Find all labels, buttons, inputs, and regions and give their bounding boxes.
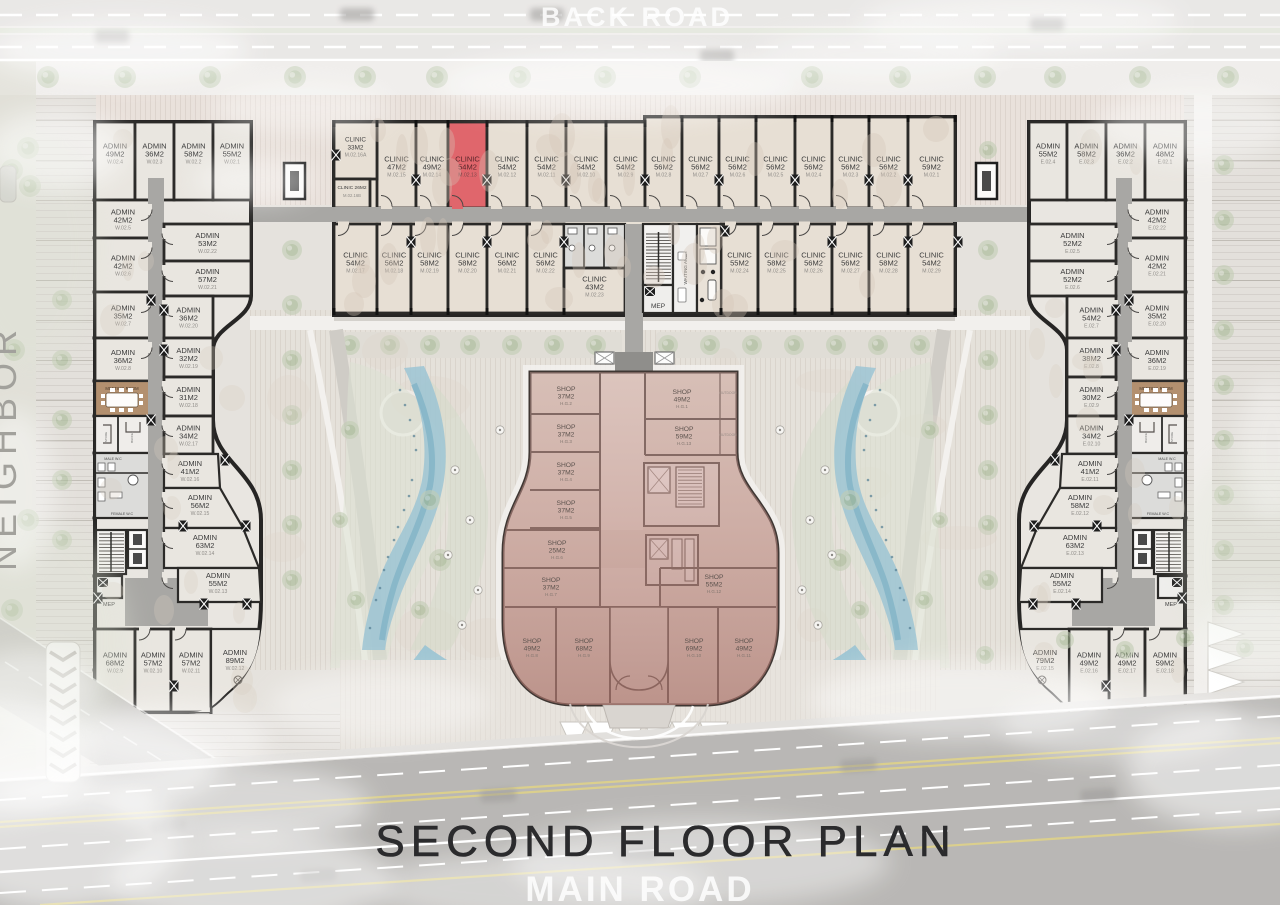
- svg-text:H.G.2: H.G.2: [560, 401, 572, 406]
- svg-text:W.02.15: W.02.15: [191, 511, 210, 517]
- svg-text:53M2: 53M2: [198, 239, 217, 248]
- svg-text:H.G.8: H.G.8: [526, 653, 538, 658]
- svg-text:E.02.20: E.02.20: [1148, 322, 1166, 328]
- svg-text:E.02.16: E.02.16: [1080, 669, 1098, 675]
- svg-text:54M2: 54M2: [922, 259, 941, 268]
- svg-text:W.02.16: W.02.16: [181, 477, 200, 483]
- svg-text:58M2: 58M2: [458, 259, 477, 268]
- svg-text:MALE W.C: MALE W.C: [1158, 457, 1176, 461]
- svg-text:SHOP: SHOP: [685, 638, 704, 645]
- svg-text:63M2: 63M2: [196, 541, 215, 550]
- svg-text:MAIN ROAD: MAIN ROAD: [525, 870, 754, 905]
- svg-text:SHOP: SHOP: [542, 577, 561, 584]
- svg-text:STORE: STORE: [104, 432, 108, 442]
- svg-text:37M2: 37M2: [543, 585, 560, 592]
- svg-text:M.02.16A: M.02.16A: [345, 153, 367, 159]
- svg-text:SHOP: SHOP: [548, 540, 567, 547]
- svg-text:52M2: 52M2: [1063, 239, 1082, 248]
- svg-text:58M2: 58M2: [420, 259, 439, 268]
- svg-text:49M2: 49M2: [1080, 659, 1099, 668]
- svg-text:31M2: 31M2: [179, 393, 198, 402]
- svg-text:49M2: 49M2: [736, 646, 753, 653]
- svg-text:69M2: 69M2: [686, 646, 703, 653]
- svg-text:BUFFET: BUFFET: [130, 431, 134, 443]
- svg-text:MALE W.C: MALE W.C: [104, 457, 122, 461]
- svg-text:E.02.4: E.02.4: [1041, 160, 1056, 166]
- svg-text:OUTDOOR: OUTDOOR: [719, 433, 737, 437]
- svg-text:NEIGHBOR: NEIGHBOR: [0, 323, 24, 571]
- svg-text:H.G.13: H.G.13: [677, 441, 692, 446]
- svg-text:E.02.22: E.02.22: [1148, 226, 1166, 232]
- svg-text:SECOND FLOOR PLAN: SECOND FLOOR PLAN: [375, 817, 956, 866]
- svg-text:36M2: 36M2: [145, 150, 164, 159]
- svg-text:37M2: 37M2: [558, 470, 575, 477]
- svg-text:SHOP: SHOP: [705, 574, 724, 581]
- svg-text:57M2: 57M2: [198, 275, 217, 284]
- svg-text:89M2: 89M2: [226, 656, 245, 665]
- svg-text:49M2: 49M2: [1118, 659, 1137, 668]
- svg-text:59M2: 59M2: [922, 163, 941, 172]
- svg-text:H.G.5: H.G.5: [560, 515, 572, 520]
- svg-text:54M2: 54M2: [458, 163, 477, 172]
- svg-text:M.02.21: M.02.21: [498, 269, 517, 275]
- svg-text:SHOP: SHOP: [557, 462, 576, 469]
- svg-text:58M2: 58M2: [879, 259, 898, 268]
- svg-text:E.02.19: E.02.19: [1148, 366, 1166, 372]
- svg-text:BACK ROAD: BACK ROAD: [541, 2, 733, 32]
- svg-text:56M2: 56M2: [841, 163, 860, 172]
- svg-text:52M2: 52M2: [1063, 275, 1082, 284]
- svg-text:M.02.3: M.02.3: [843, 173, 859, 179]
- svg-text:W.02.8: W.02.8: [115, 366, 131, 372]
- svg-text:57M2: 57M2: [144, 659, 163, 668]
- svg-text:FEMALE W.C: FEMALE W.C: [1147, 512, 1170, 516]
- svg-text:M.02.27: M.02.27: [841, 269, 860, 275]
- svg-text:25M2: 25M2: [549, 548, 566, 555]
- svg-text:SHOP: SHOP: [523, 638, 542, 645]
- svg-text:37M2: 37M2: [558, 508, 575, 515]
- svg-text:59M2: 59M2: [676, 434, 693, 441]
- svg-text:W.02.22: W.02.22: [198, 249, 217, 255]
- svg-text:H.G.10: H.G.10: [687, 653, 702, 658]
- svg-text:W.02.17: W.02.17: [179, 442, 198, 448]
- svg-text:MEP: MEP: [1165, 602, 1177, 608]
- svg-text:56M2: 56M2: [804, 163, 823, 172]
- svg-text:37M2: 37M2: [558, 394, 575, 401]
- svg-text:H.G.1: H.G.1: [676, 404, 688, 409]
- svg-text:54M2: 54M2: [1082, 314, 1101, 323]
- svg-text:42M2: 42M2: [1148, 262, 1167, 271]
- svg-text:43M2: 43M2: [585, 283, 604, 292]
- svg-text:W.02.18: W.02.18: [179, 403, 198, 409]
- svg-text:M.02.5: M.02.5: [768, 173, 784, 179]
- svg-text:M.02.19: M.02.19: [420, 269, 439, 275]
- svg-text:E.02.1: E.02.1: [1158, 160, 1173, 166]
- svg-text:33M2: 33M2: [348, 145, 364, 152]
- svg-text:W.02.3: W.02.3: [147, 160, 163, 166]
- svg-text:FEMALE W.C: FEMALE W.C: [111, 512, 134, 516]
- svg-text:BUFFET: BUFFET: [1144, 431, 1148, 443]
- svg-text:M.02.8: M.02.8: [656, 173, 672, 179]
- svg-text:E.02.7: E.02.7: [1084, 324, 1099, 330]
- svg-text:M.02.13: M.02.13: [458, 173, 477, 179]
- svg-text:E.02.12: E.02.12: [1071, 511, 1089, 517]
- svg-text:M.02.12: M.02.12: [498, 173, 517, 179]
- svg-text:SHOP: SHOP: [557, 424, 576, 431]
- svg-text:M.02.24: M.02.24: [730, 269, 749, 275]
- svg-text:55M2: 55M2: [730, 259, 749, 268]
- svg-text:58M2: 58M2: [184, 150, 203, 159]
- svg-text:W.02.2: W.02.2: [186, 160, 202, 166]
- svg-text:M.02.20: M.02.20: [458, 269, 477, 275]
- svg-text:M.02.25: M.02.25: [767, 269, 786, 275]
- svg-text:36M2: 36M2: [179, 314, 198, 323]
- svg-text:W.02.20: W.02.20: [179, 324, 198, 330]
- svg-text:CLINIC 26M2: CLINIC 26M2: [337, 185, 366, 191]
- svg-text:63M2: 63M2: [1066, 541, 1085, 550]
- svg-text:M.02.6: M.02.6: [730, 173, 746, 179]
- svg-text:42M2: 42M2: [114, 216, 133, 225]
- svg-text:E.02.5: E.02.5: [1065, 249, 1080, 255]
- svg-text:M.02.23: M.02.23: [585, 293, 604, 299]
- svg-text:41M2: 41M2: [181, 467, 200, 476]
- svg-text:H.G.6: H.G.6: [551, 555, 563, 560]
- svg-text:SHOP: SHOP: [575, 638, 594, 645]
- svg-text:49M2: 49M2: [524, 646, 541, 653]
- svg-text:56M2: 56M2: [191, 501, 210, 510]
- svg-text:SHOP: SHOP: [557, 386, 576, 393]
- svg-text:56M2: 56M2: [536, 259, 555, 268]
- svg-text:37M2: 37M2: [558, 432, 575, 439]
- svg-text:W.02.10: W.02.10: [144, 669, 163, 675]
- svg-text:56M2: 56M2: [766, 163, 785, 172]
- svg-text:SHOP: SHOP: [673, 389, 692, 396]
- svg-text:MEP: MEP: [651, 303, 665, 310]
- svg-text:E.02.10: E.02.10: [1083, 442, 1101, 448]
- svg-text:H.G.9: H.G.9: [578, 653, 590, 658]
- svg-text:58M2: 58M2: [1071, 501, 1090, 510]
- svg-text:56M2: 56M2: [498, 259, 517, 268]
- svg-text:STORE: STORE: [1170, 432, 1174, 442]
- svg-text:H.G.3: H.G.3: [560, 439, 572, 444]
- svg-text:E.02.17: E.02.17: [1118, 669, 1136, 675]
- svg-text:W.02.14: W.02.14: [196, 551, 215, 557]
- svg-text:M.02.22: M.02.22: [536, 269, 555, 275]
- svg-text:M.02.16B: M.02.16B: [343, 193, 361, 198]
- svg-text:E.02.11: E.02.11: [1081, 477, 1098, 483]
- svg-text:56M2: 56M2: [728, 163, 747, 172]
- svg-text:W.02.21: W.02.21: [198, 285, 217, 291]
- svg-text:42M2: 42M2: [1148, 216, 1167, 225]
- svg-text:W.02.5: W.02.5: [115, 226, 131, 232]
- svg-text:W.02.19: W.02.19: [179, 364, 198, 370]
- svg-text:55M2: 55M2: [706, 582, 723, 589]
- svg-text:E.02.14: E.02.14: [1053, 589, 1071, 595]
- svg-text:34M2: 34M2: [179, 432, 198, 441]
- svg-text:W.02.11: W.02.11: [182, 669, 200, 675]
- svg-text:49M2: 49M2: [674, 397, 691, 404]
- svg-text:SHOP: SHOP: [675, 426, 694, 433]
- svg-text:55M2: 55M2: [209, 579, 228, 588]
- svg-text:36M2: 36M2: [1148, 356, 1167, 365]
- svg-text:55M2: 55M2: [1039, 150, 1058, 159]
- svg-text:68M2: 68M2: [576, 646, 593, 653]
- svg-text:56M2: 56M2: [691, 163, 710, 172]
- svg-text:OUTDOOR: OUTDOOR: [719, 391, 737, 395]
- svg-text:30M2: 30M2: [1082, 393, 1101, 402]
- svg-text:M.02.1: M.02.1: [924, 173, 940, 179]
- svg-text:CLINIC: CLINIC: [345, 137, 366, 144]
- svg-text:57M2: 57M2: [182, 659, 201, 668]
- svg-text:55M2: 55M2: [1053, 579, 1072, 588]
- svg-text:M.02.26: M.02.26: [804, 269, 823, 275]
- svg-text:E.02.6: E.02.6: [1065, 285, 1080, 291]
- svg-text:H.G.12: H.G.12: [707, 589, 722, 594]
- svg-text:SHOP: SHOP: [735, 638, 754, 645]
- svg-text:54M2: 54M2: [498, 163, 517, 172]
- svg-text:35M2: 35M2: [1148, 312, 1167, 321]
- svg-text:M.02.4: M.02.4: [806, 173, 822, 179]
- svg-text:H.G.4: H.G.4: [560, 477, 572, 482]
- svg-text:W.02.13: W.02.13: [209, 589, 228, 595]
- svg-text:M.02.28: M.02.28: [879, 269, 898, 275]
- svg-text:H.G.7: H.G.7: [545, 592, 557, 597]
- svg-text:56M2: 56M2: [804, 259, 823, 268]
- svg-text:E.02.13: E.02.13: [1066, 551, 1084, 557]
- svg-text:41M2: 41M2: [1081, 467, 1100, 476]
- svg-text:M.02.29: M.02.29: [922, 269, 941, 275]
- svg-text:36M2: 36M2: [114, 356, 133, 365]
- svg-text:E.02.21: E.02.21: [1148, 272, 1166, 278]
- svg-text:M.02.7: M.02.7: [693, 173, 709, 179]
- svg-text:SHOP: SHOP: [557, 500, 576, 507]
- svg-text:H.G.11: H.G.11: [737, 653, 751, 658]
- svg-text:32M2: 32M2: [179, 354, 198, 363]
- svg-text:56M2: 56M2: [841, 259, 860, 268]
